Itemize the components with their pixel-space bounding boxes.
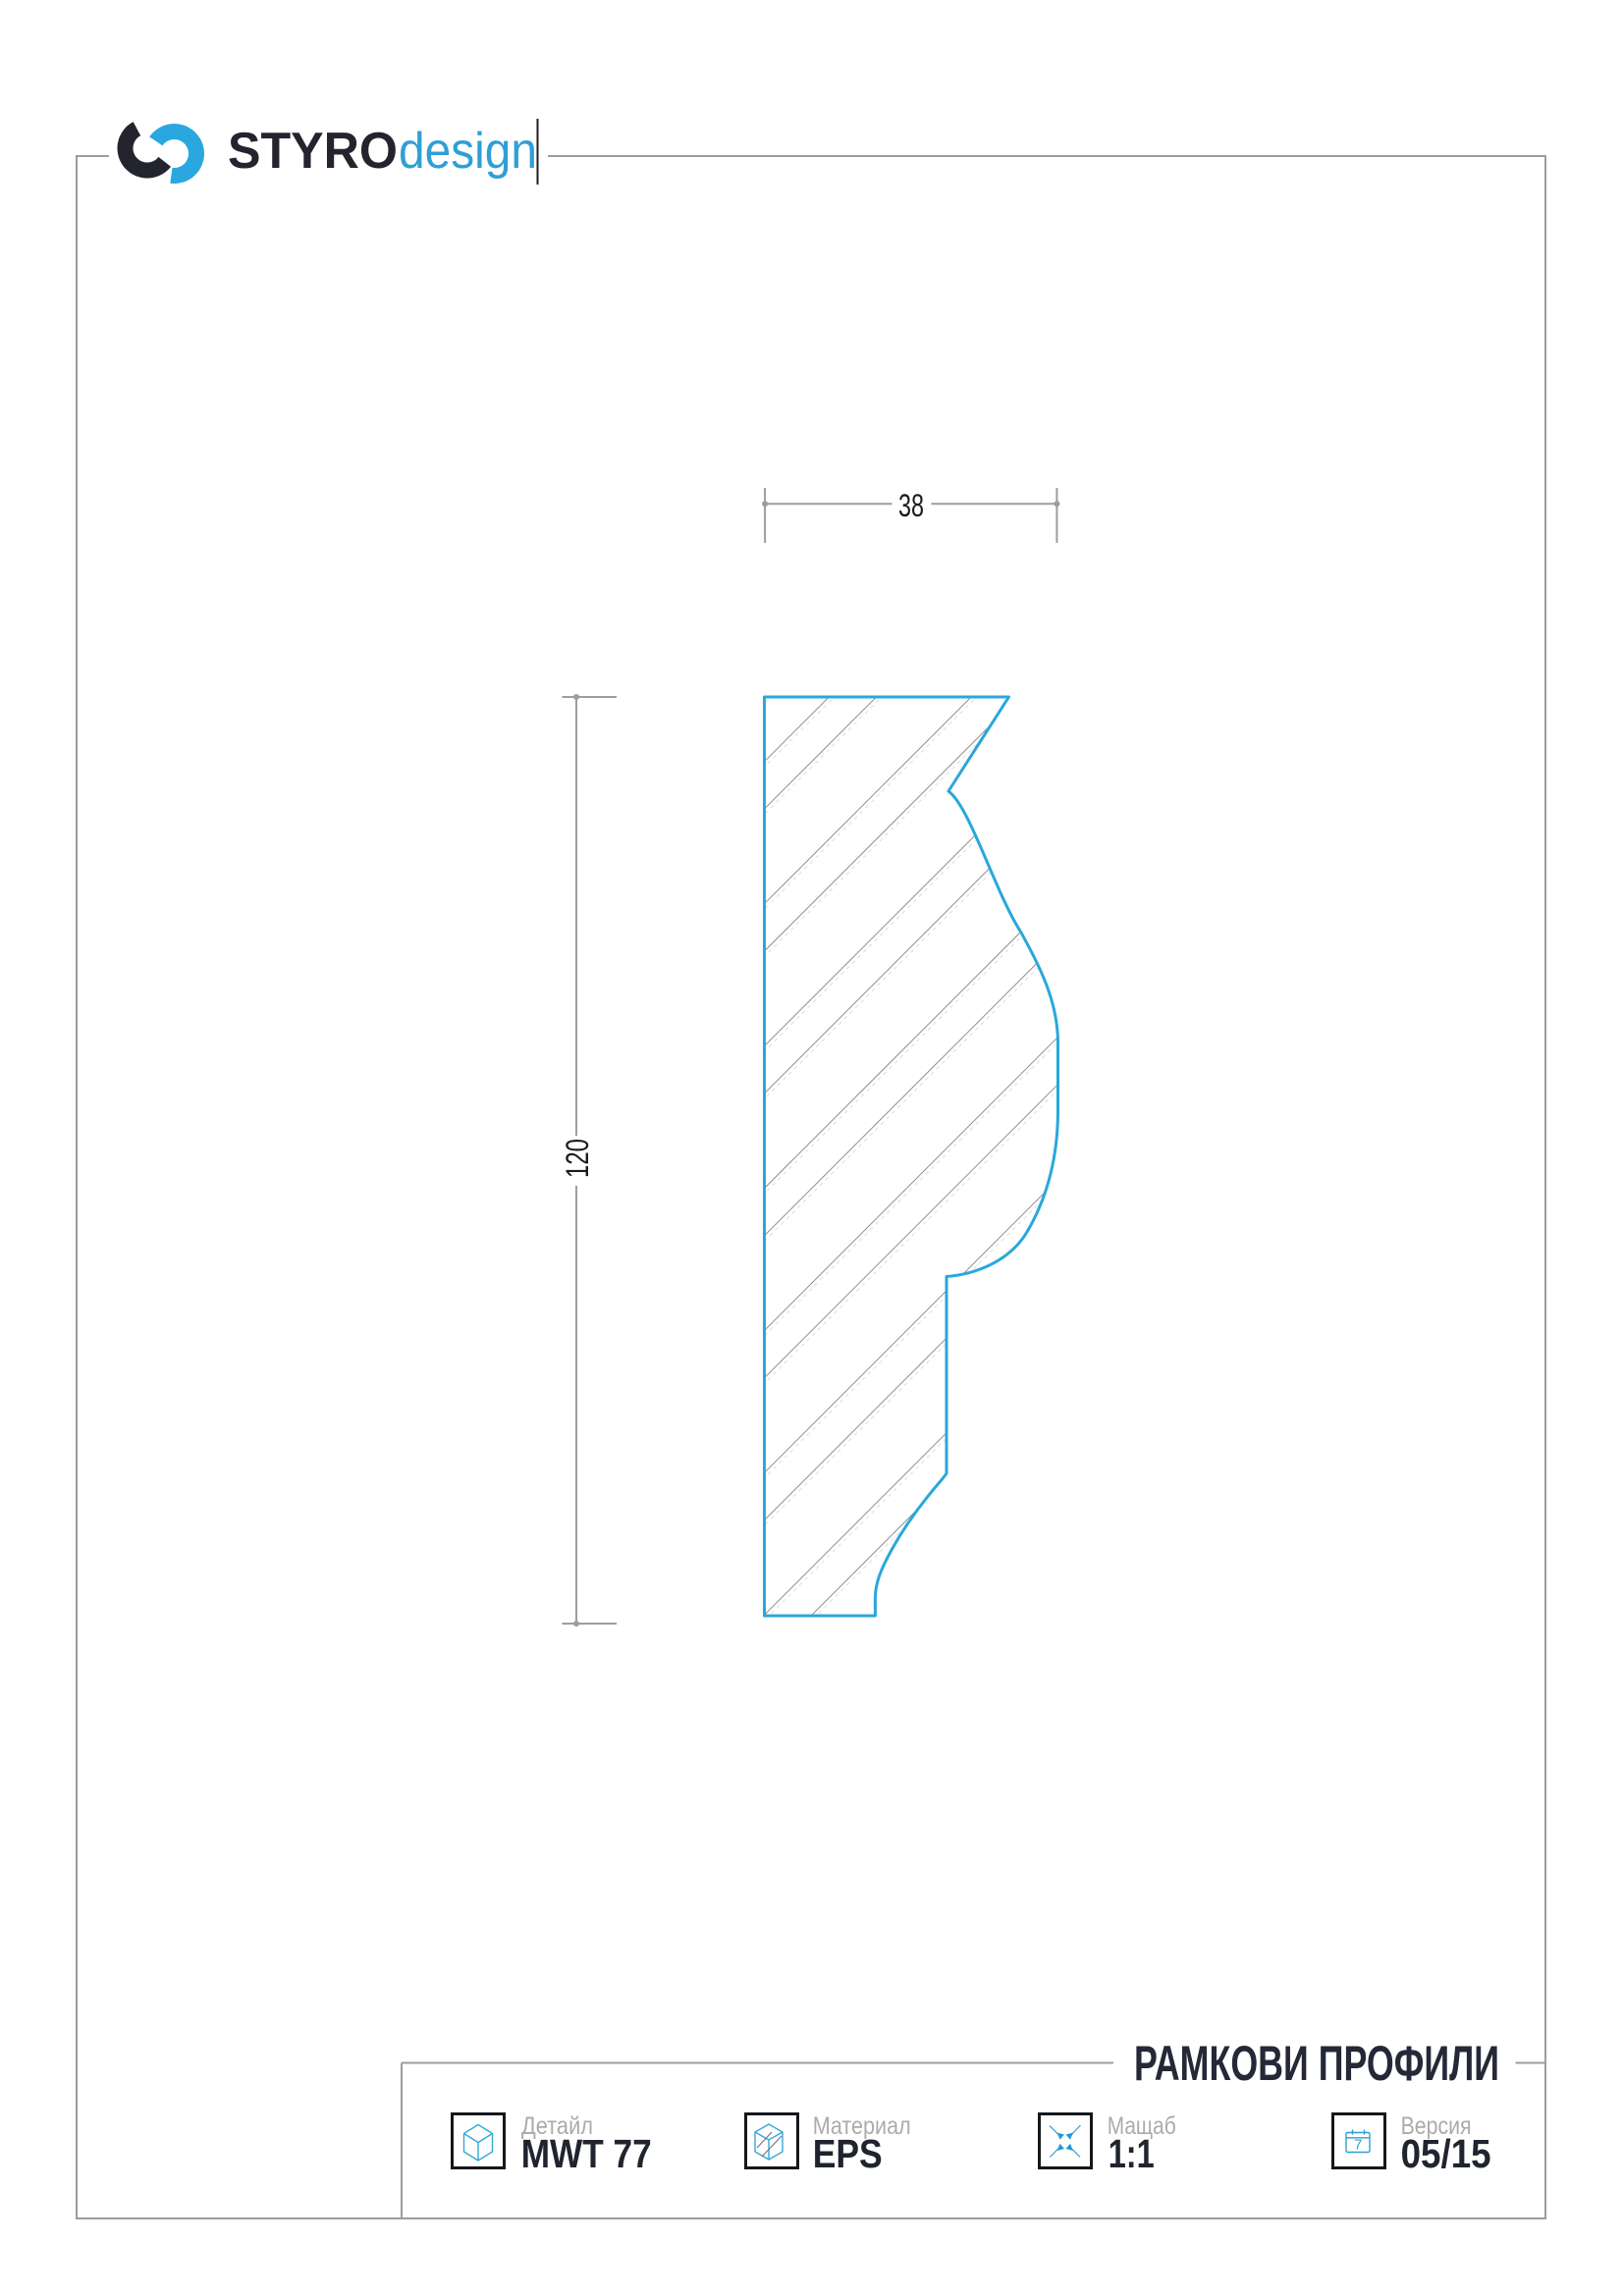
svg-text:РАМКОВИ ПРОФИЛИ: РАМКОВИ ПРОФИЛИ <box>1134 2036 1499 2091</box>
svg-text:MWT 77: MWT 77 <box>521 2131 652 2176</box>
svg-text:7: 7 <box>1354 2137 1362 2154</box>
svg-text:38: 38 <box>898 488 924 523</box>
svg-text:EPS: EPS <box>813 2131 883 2176</box>
svg-text:120: 120 <box>560 1139 595 1178</box>
svg-text:STYRO: STYRO <box>228 123 398 180</box>
svg-text:design: design <box>399 123 537 180</box>
svg-text:05/15: 05/15 <box>1401 2131 1491 2176</box>
svg-text:1:1: 1:1 <box>1109 2131 1155 2176</box>
